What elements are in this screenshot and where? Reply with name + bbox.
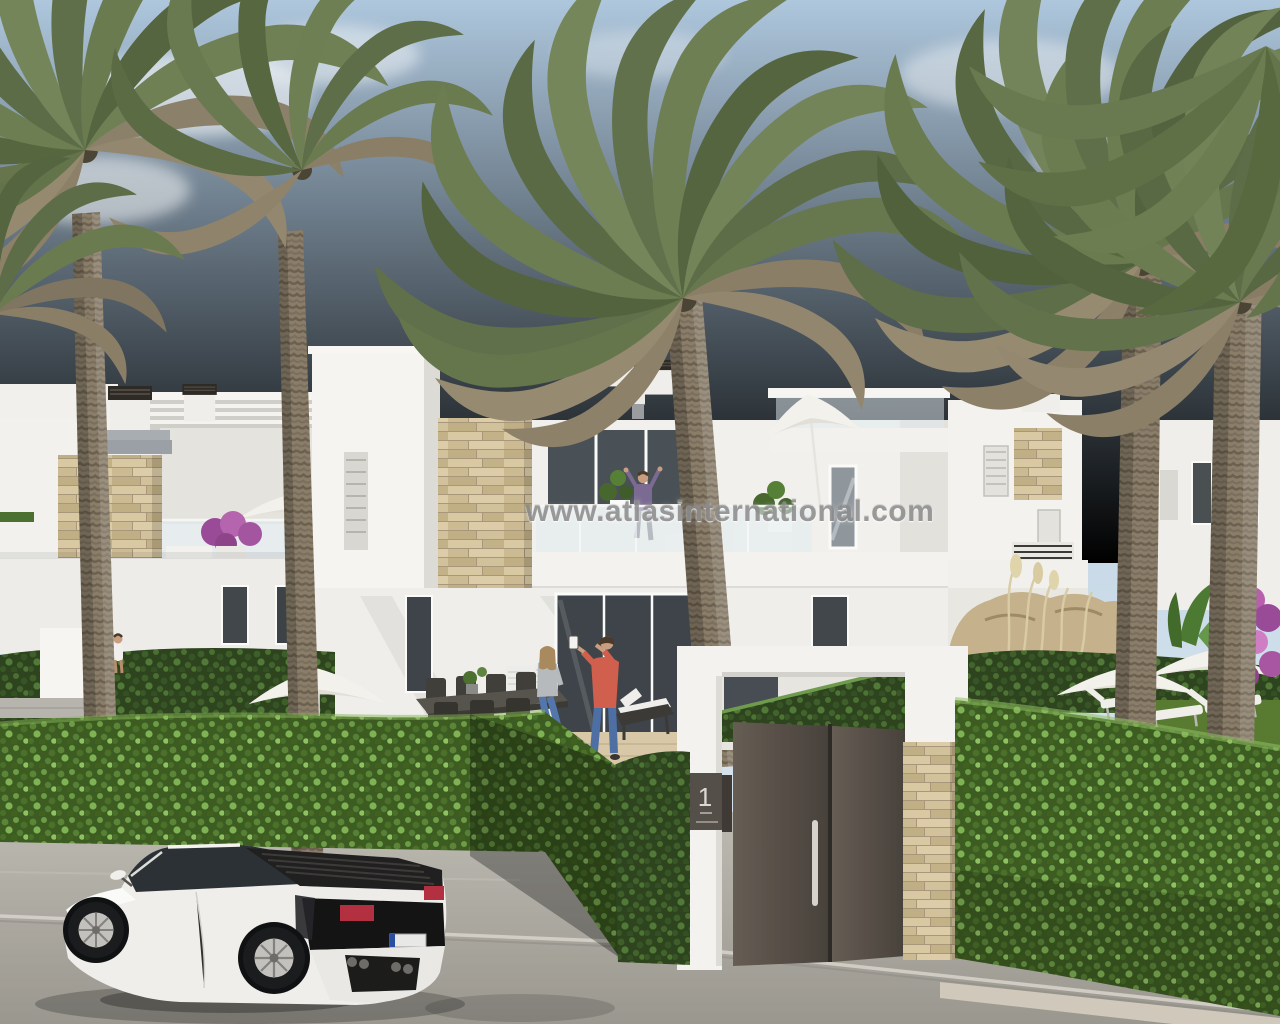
gate-door-right: [832, 726, 905, 962]
property-render: 1 www.atlasinternational.com: [0, 0, 1280, 1024]
license-plate: [390, 934, 426, 947]
gate-sign-number: 1: [698, 782, 712, 812]
louvre-shutter: [984, 446, 1008, 496]
hedge-by-gate: [612, 751, 690, 965]
watermark: www.atlasinternational.com: [190, 495, 1270, 529]
entrance-gate: 1: [677, 646, 968, 970]
chimney: [182, 384, 216, 421]
gate-sign: 1: [688, 773, 732, 832]
balcony-railing: [1012, 542, 1074, 562]
chimney: [108, 386, 152, 434]
window: [406, 596, 432, 692]
terrace-parapet: [532, 552, 952, 590]
taillight: [424, 886, 444, 900]
gate-handle: [812, 820, 818, 906]
car-wheel: [243, 927, 305, 989]
villa-tower: [312, 352, 438, 590]
planter: [0, 522, 34, 550]
stone-pillar: [903, 742, 958, 960]
car-wheel: [68, 902, 124, 958]
stone-cladding-strip: [1014, 428, 1062, 500]
taillight: [340, 905, 374, 921]
window: [222, 586, 248, 644]
